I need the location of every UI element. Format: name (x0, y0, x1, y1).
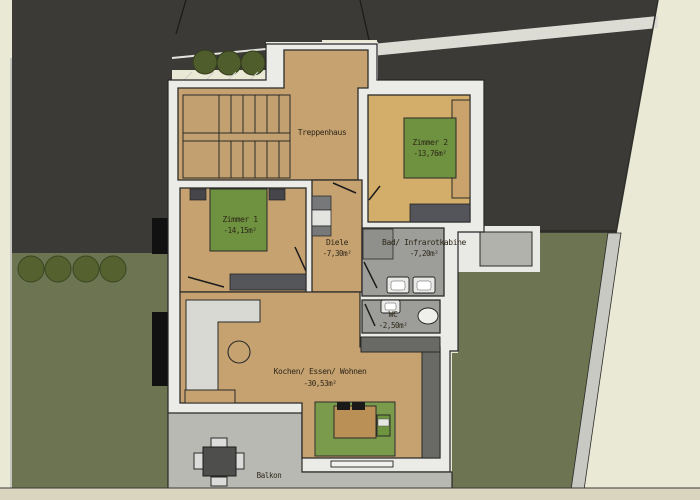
bad-area: -7,20m² (410, 249, 439, 258)
room-zimmer1: Zimmer 1 -14,15m² (180, 188, 306, 292)
tree-icon (241, 51, 265, 75)
closet-icon (312, 196, 331, 210)
wc-label: WC (389, 310, 398, 319)
dining-table-icon (228, 341, 250, 363)
street (0, 488, 700, 500)
zimmer1-label: Zimmer 1 (222, 215, 258, 224)
floor-plan: Balkon Treppenhaus Zimmer 2 -13,76m² (0, 0, 700, 500)
closet-icon (312, 210, 331, 226)
tree-icon (45, 256, 71, 282)
zimmer1-area: -14,15m² (224, 226, 257, 235)
kitchen-island (185, 390, 235, 403)
tree-icon (18, 256, 44, 282)
bad-label: Bad/ Infrarotkabine (382, 238, 466, 247)
diele-label: Diele (326, 238, 349, 247)
room-wc: WC -2,50m² (362, 300, 440, 333)
neighbor-building-left (12, 0, 172, 253)
patio (480, 232, 532, 266)
chair-icon (194, 453, 203, 469)
table-top (203, 447, 236, 476)
tree-icon (73, 256, 99, 282)
balkon-label: Balkon (257, 471, 282, 480)
zimmer2-label: Zimmer 2 (412, 138, 448, 147)
closet-icon (312, 226, 331, 236)
wohnen-label: Kochen/ Essen/ Wohnen (274, 367, 367, 376)
cabinet-row (361, 337, 440, 352)
stair-outline (183, 95, 290, 178)
sink-icon (413, 277, 435, 293)
diele-area: -7,30m² (323, 249, 352, 258)
sink-icon (387, 277, 409, 293)
wc-area: -2,50m² (379, 321, 408, 330)
wohnen-area: -30,53m² (304, 379, 337, 388)
dresser-icon (410, 204, 470, 222)
lawn-west (12, 253, 172, 490)
chair-icon (211, 438, 227, 447)
door-step (331, 461, 393, 467)
room-zimmer2: Zimmer 2 -13,76m² (368, 95, 470, 222)
west-window-opening (152, 312, 168, 386)
tree-icon (193, 50, 217, 74)
nightstand-icon (269, 189, 285, 200)
chair-icon (211, 477, 227, 486)
street-strip (0, 488, 700, 500)
nightstand-icon (190, 189, 206, 200)
bed-icon (404, 118, 456, 178)
west-window-opening (152, 218, 168, 254)
cabinet-column (422, 352, 440, 458)
tree-icon (217, 51, 241, 75)
treppenhaus-label: Treppenhaus (298, 128, 347, 137)
tree-icon (100, 256, 126, 282)
floor-plan-drawing: Balkon Treppenhaus Zimmer 2 -13,76m² (0, 0, 700, 500)
zimmer2-area: -13,76m² (414, 149, 447, 158)
toilet-icon (418, 308, 438, 324)
room-diele: Diele -7,30m² (312, 180, 362, 292)
wardrobe-icon (230, 274, 306, 290)
staircase (183, 95, 290, 178)
